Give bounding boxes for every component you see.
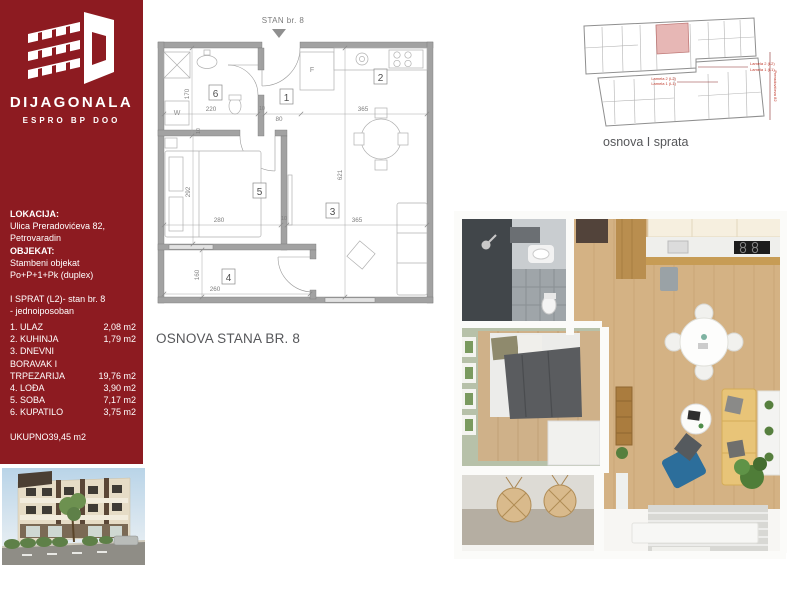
- room-number-kitchen: 2: [378, 73, 384, 84]
- object-floors: Po+P+1+Pk (duplex): [10, 269, 137, 281]
- kitchen-fixtures: F: [300, 48, 427, 90]
- room-area: 7,17 m2: [103, 394, 136, 406]
- object-label: OBJEKAT:: [10, 245, 137, 257]
- room-number-loggia: 4: [226, 273, 232, 284]
- bathroom-3d: [462, 219, 566, 323]
- unit-type: - jednoiposoban: [10, 305, 137, 317]
- dining-set: [354, 108, 408, 170]
- room-number-bathroom: 6: [213, 89, 219, 100]
- room-label: 3. DNEVNI BORAVAK I TRPEZARIJA: [10, 345, 98, 382]
- pointer-arrow-icon: [272, 29, 286, 38]
- dim-bath-width: 220: [206, 106, 217, 113]
- street-label: Preradovićeva 82: [773, 70, 778, 102]
- total-row: UKUPNO 39,45 m2: [10, 431, 136, 443]
- room-number-bedroom: 5: [257, 187, 263, 198]
- brand-subtitle: ESPRO BP DOO: [0, 116, 143, 125]
- lamela-label: Lamela 2 (L2): [750, 61, 775, 66]
- room-number-living: 3: [330, 207, 336, 218]
- fridge: [300, 52, 334, 90]
- brochure-page: DIJAGONALA ESPRO BP DOO LOKACIJA: Ulica …: [0, 0, 800, 600]
- dim-bed-depth: 292: [185, 186, 192, 197]
- location-label: LOKACIJA:: [10, 208, 137, 220]
- site-plan-drawing: Lamela 2 (L2) Lamela 1 (L1) Lamela 2 (L2…: [578, 12, 790, 132]
- sidebar: DIJAGONALA ESPRO BP DOO LOKACIJA: Ulica …: [0, 0, 143, 464]
- dim-apartment-depth: 621: [337, 169, 344, 180]
- total-label: UKUPNO: [10, 431, 49, 443]
- fridge-label: F: [310, 67, 314, 74]
- room-area: 3,90 m2: [103, 382, 136, 394]
- room-label: 6. KUPATILO: [10, 406, 103, 418]
- apartment-3d-render: [452, 205, 787, 560]
- room-label: 2. KUHINJA: [10, 333, 103, 345]
- highlighted-unit: [656, 23, 689, 54]
- dim-loggia-width: 260: [210, 286, 221, 293]
- apartment-info: LOKACIJA: Ulica Preradovićeva 82, Petrov…: [10, 208, 137, 318]
- room-row: 3. DNEVNI BORAVAK I TRPEZARIJA 19,76 m2: [10, 345, 136, 382]
- dim-kitchen-width: 365: [358, 106, 369, 113]
- lamela-label: Lamela 1 (L1): [651, 81, 676, 86]
- room-area: 3,75 m2: [103, 406, 136, 418]
- building-exterior-render: [2, 468, 145, 565]
- dim-bed-wall: 10: [196, 128, 202, 134]
- room-row: 2. KUHINJA 1,79 m2: [10, 333, 136, 345]
- unit-line: I SPRAT (L2)- stan br. 8: [10, 293, 137, 305]
- bedroom-3d: [460, 327, 602, 467]
- total-area: 39,45 m2: [49, 431, 87, 443]
- object-type: Stambeni objekat: [10, 257, 137, 269]
- floor-plan-pointer-label: STAN br. 8: [262, 16, 305, 25]
- brand-name: DIJAGONALA: [0, 94, 143, 111]
- room-row: 4. LOĐA 3,90 m2: [10, 382, 136, 394]
- washer-label: W: [174, 110, 181, 117]
- room-label: 5. SOBA: [10, 394, 103, 406]
- dim-loggia-depth: 160: [194, 269, 201, 280]
- room-row: 6. KUPATILO 3,75 m2: [10, 406, 136, 418]
- dim-entry-width: 80: [275, 116, 283, 123]
- lamela-label: Lamela 1 (L1): [750, 67, 775, 72]
- room-label: 4. LOĐA: [10, 382, 103, 394]
- room-area-list: 1. ULAZ 2,08 m2 2. KUHINJA 1,79 m2 3. DN…: [10, 321, 136, 443]
- dim-wall-a: 10: [259, 106, 265, 112]
- room-label: 1. ULAZ: [10, 321, 103, 333]
- dim-bed-width: 280: [214, 217, 225, 224]
- living-furniture: [288, 175, 427, 295]
- loggia-3d: [462, 475, 594, 553]
- room-area: 1,79 m2: [103, 333, 136, 345]
- dim-bath-depth: 170: [184, 88, 191, 99]
- room-number-hall: 1: [284, 93, 290, 104]
- site-plan-caption: osnova I sprata: [603, 135, 688, 149]
- company-logo-building-icon: [22, 8, 120, 92]
- dim-wall-b: 10: [281, 216, 287, 222]
- entrance-door-3d: [576, 219, 608, 243]
- floor-plan-drawing: STAN br. 8: [155, 5, 455, 327]
- room-area: 2,08 m2: [103, 321, 136, 333]
- dim-living-width: 365: [352, 217, 363, 224]
- room-row: 5. SOBA 7,17 m2: [10, 394, 136, 406]
- room-row: 1. ULAZ 2,08 m2: [10, 321, 136, 333]
- location-street: Ulica Preradovićeva 82,: [10, 220, 137, 232]
- floor-plan-caption: OSNOVA STANA BR. 8: [156, 331, 300, 346]
- location-city: Petrovaradin: [10, 232, 137, 244]
- room-area: 19,76 m2: [98, 370, 136, 382]
